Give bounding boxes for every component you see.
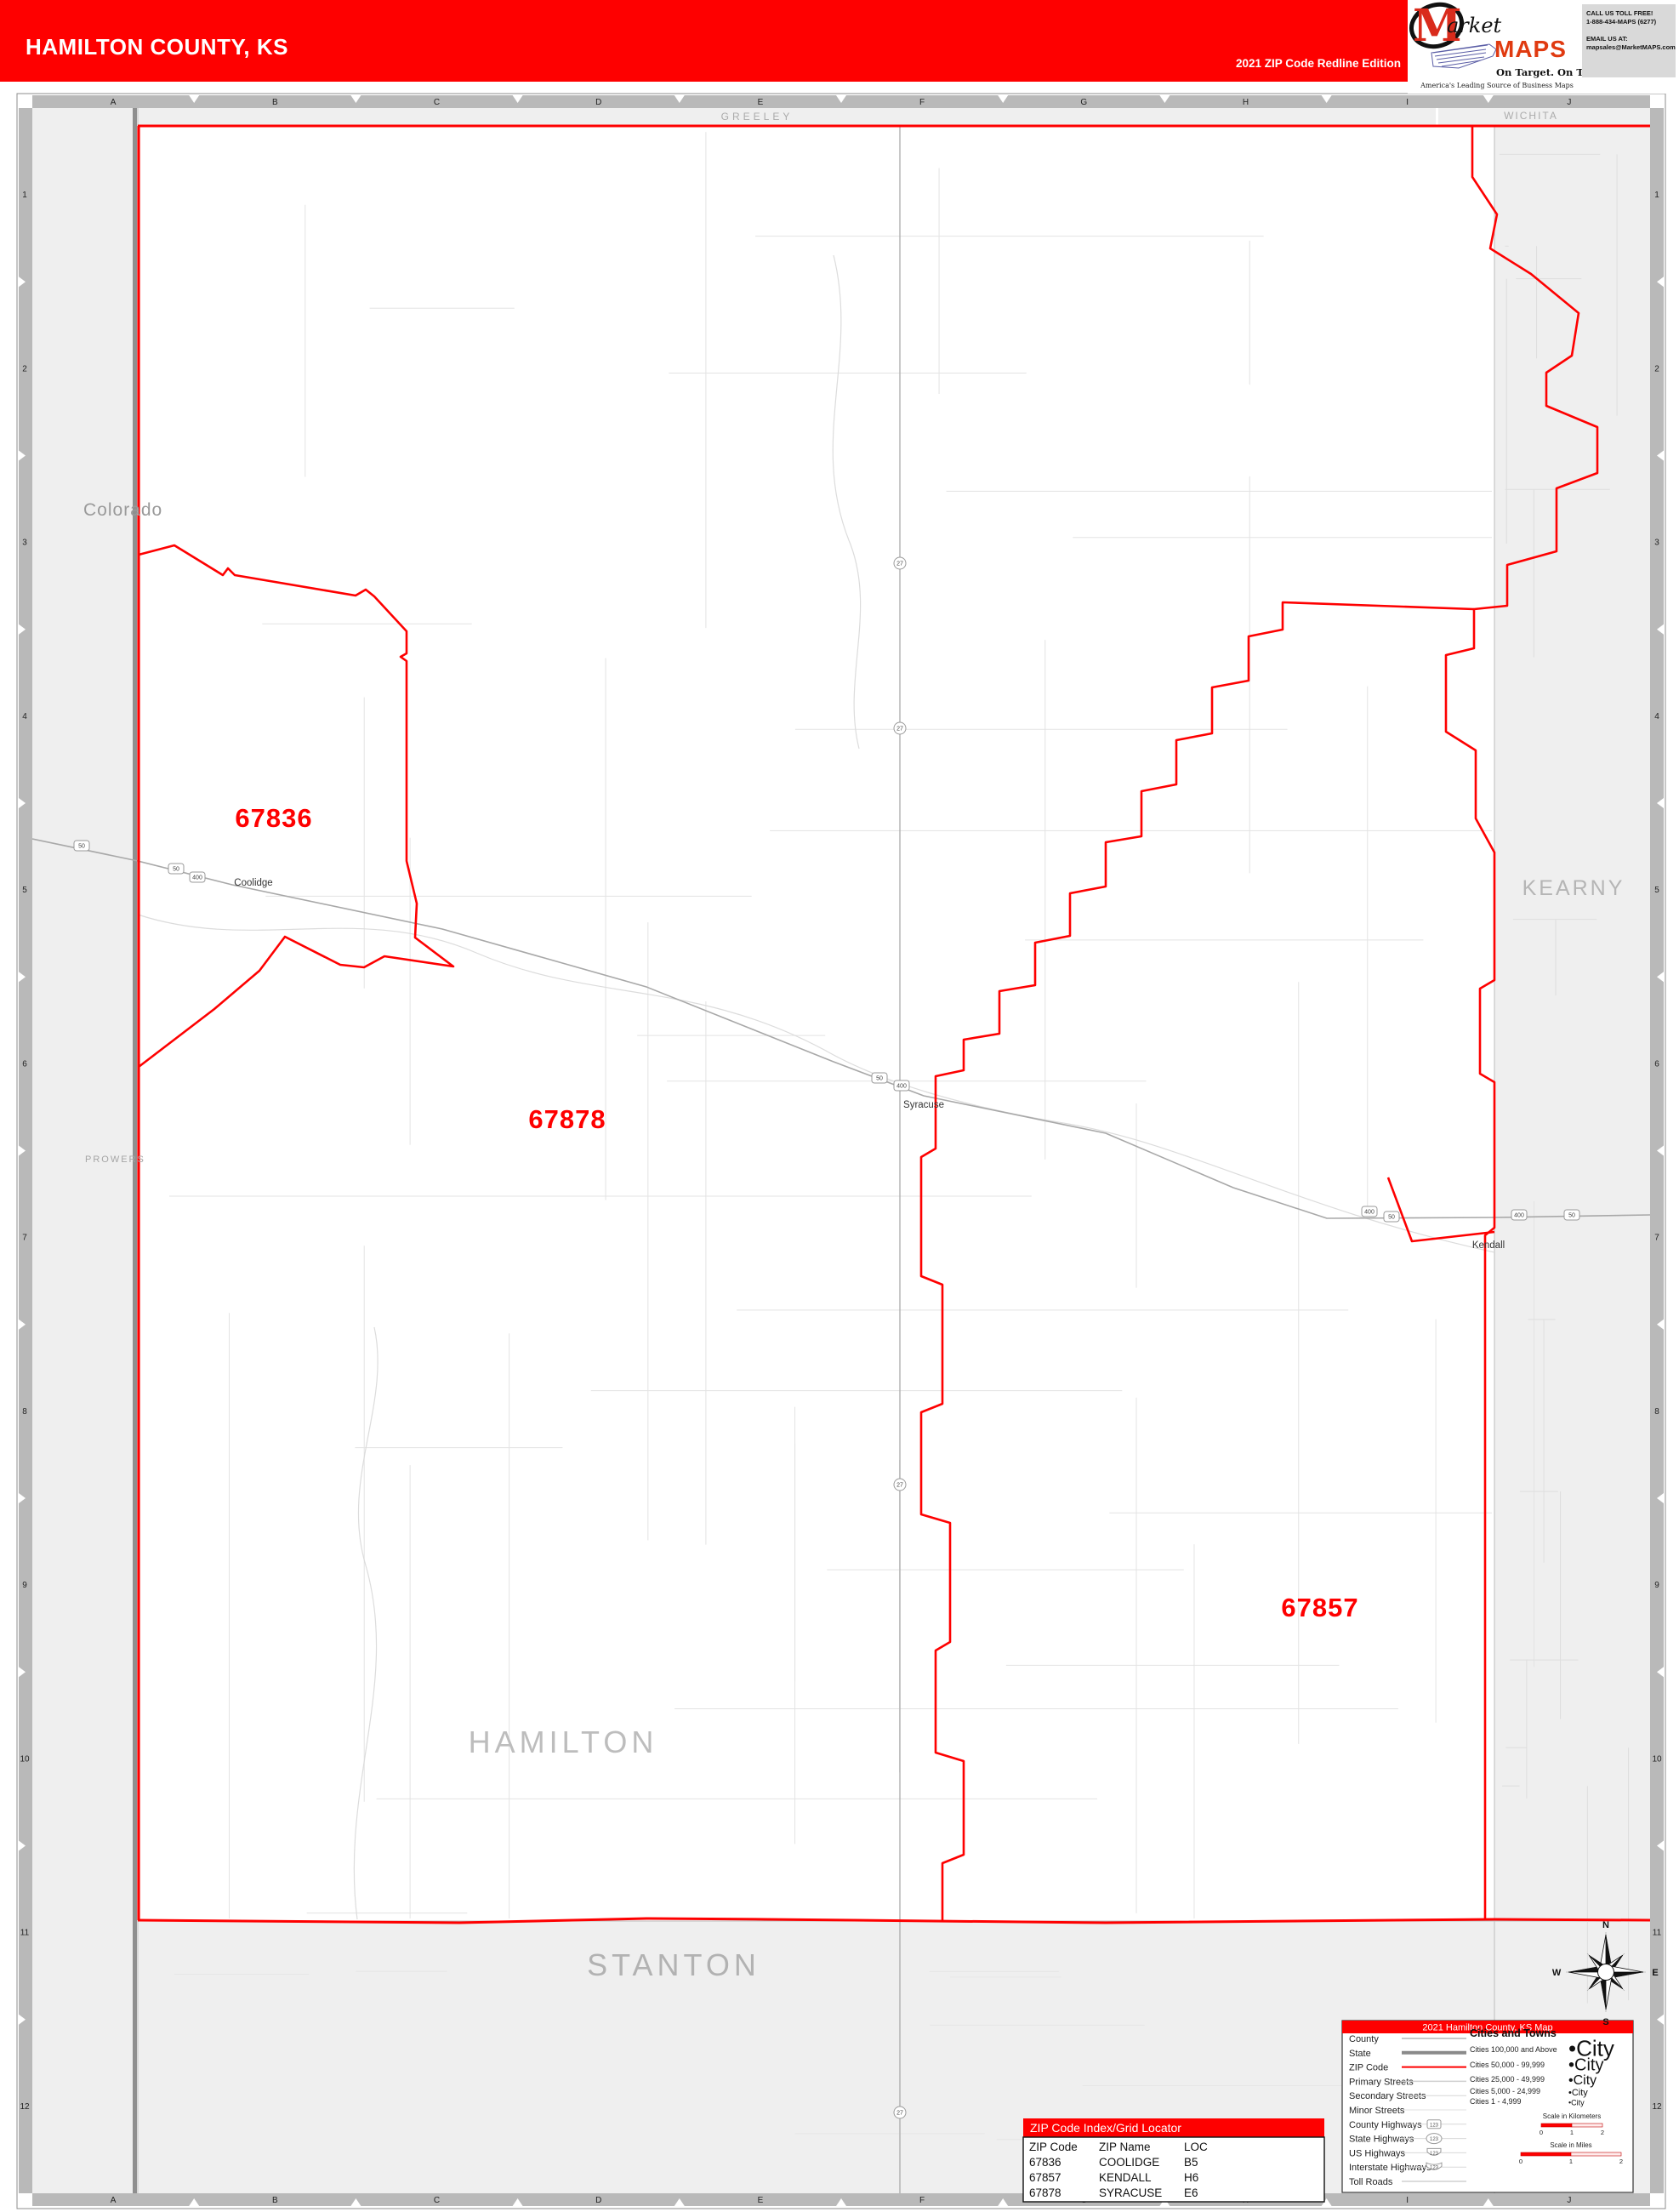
area-colorado [32,108,138,2193]
area-kearny [1494,126,1650,2193]
legend-city-sample: •City [1568,2099,1585,2107]
grid-col-label: J [1567,98,1571,107]
grid-row-label: 9 [1654,1581,1659,1590]
zip-index-cell: B5 [1184,2156,1198,2169]
svg-text:27: 27 [896,562,903,567]
legend-scale-tick: 1 [1570,2129,1574,2136]
legend-item-label: Toll Roads [1349,2177,1393,2187]
legend-item-label: Minor Streets [1349,2106,1405,2116]
logo-subtitle: America's Leading Source of Business Map… [1408,82,1586,89]
grid-row-label: 11 [20,1929,30,1938]
grid-row-label: 8 [1654,1407,1659,1417]
zip-index-cell: 67836 [1029,2156,1061,2169]
logo-maps-text: MAPS [1494,36,1567,63]
page: AABBCCDDEEFFGGHHIIJJ11223344556677889910… [0,0,1679,2212]
zip-index-col-header: ZIP Code [1029,2141,1078,2153]
zip-index-col-header: ZIP Name [1099,2141,1151,2153]
highway-shield-400: 400 [894,1080,909,1091]
legend-item-label: ZIP Code [1349,2063,1388,2073]
grid-col-label: G [1080,98,1087,107]
svg-text:50: 50 [1388,1215,1395,1221]
grid-row-label: 10 [1652,1754,1662,1764]
grid-col-label: C [434,98,440,107]
legend-city-sample: •City [1568,2056,1603,2075]
grid-row-label: 10 [20,1754,30,1764]
page-title: HAMILTON COUNTY, KS [26,34,288,60]
grid-row-label: 11 [1653,1929,1662,1938]
svg-text:50: 50 [78,844,85,850]
grid-col-label: A [111,98,117,107]
grid-row-label: 7 [22,1234,27,1243]
legend-item-label: State [1349,2049,1371,2059]
legend-item-label: Primary Streets [1349,2077,1414,2087]
highway-shield-50: 50 [168,864,184,874]
grid-row-label: 12 [1652,2102,1662,2112]
zip-label-67878: 67878 [528,1104,606,1134]
grid-row-label: 8 [22,1407,27,1417]
legend: 2021 Hamilton County, KS MapCountyStateZ… [1342,2021,1633,2192]
compass-label-W: W [1552,1968,1562,1978]
grid-col-label: H [1243,98,1249,107]
compass-label-E: E [1652,1968,1658,1978]
region-label-prowers: PROWERS [85,1154,145,1165]
zip-index-cell: H6 [1184,2171,1198,2184]
svg-text:400: 400 [1364,1210,1375,1216]
legend-scale-title: Scale in Miles [1550,2141,1591,2149]
grid-row-label: 4 [1654,712,1659,721]
legend-scale-tick: 0 [1519,2158,1522,2165]
grid-row-label: 5 [1654,886,1659,895]
grid-row-label: 4 [22,712,27,721]
region-label-kearny: KEARNY [1522,876,1625,900]
grid-row-label: 2 [1654,364,1659,373]
svg-text:50: 50 [173,867,179,873]
grid-row-label: 6 [1654,1059,1659,1069]
svg-text:27: 27 [896,727,903,733]
town-label-kendall: Kendall [1472,1240,1505,1251]
highway-shield-400: 400 [1511,1210,1527,1220]
region-label-hamilton: HAMILTON [469,1725,658,1759]
grid-col-label: B [272,98,278,107]
highway-shield-400: 400 [1362,1206,1377,1217]
svg-text:123: 123 [1430,2152,1439,2157]
legend-scale-tick: 1 [1569,2158,1573,2165]
highway-shield-50: 50 [1384,1211,1399,1222]
header-bar: HAMILTON COUNTY, KS 2021 ZIP Code Redlin… [0,0,1408,82]
svg-text:27: 27 [896,2111,903,2117]
zip-index-cell: KENDALL [1099,2171,1152,2184]
zip-index-cell: 67878 [1029,2186,1061,2199]
county-map: AABBCCDDEEFFGGHHIIJJ11223344556677889910… [0,0,1679,2212]
grid-col-label: I [1406,2196,1409,2205]
area-greeley-wichita-strip [138,108,1650,126]
legend-city-label: Cities 25,000 - 49,999 [1470,2075,1545,2084]
grid-row-label: 3 [22,539,27,548]
region-label-greeley: GREELEY [721,111,794,123]
grid-col-label: B [272,2196,278,2205]
state-line-colorado-kansas [133,108,137,2193]
region-label-wichita: WICHITA [1504,110,1558,122]
grid-row-label: 5 [22,886,27,895]
highway-shield-50: 50 [872,1073,887,1083]
contact-call-label: CALL US TOLL FREE! [1586,9,1676,18]
svg-text:400: 400 [1514,1213,1524,1219]
highway-shield-50: 50 [1564,1210,1579,1220]
highway-shield-400: 400 [190,872,205,882]
grid-row-label: 12 [20,2102,30,2112]
grid-col-label: D [595,2196,601,2205]
highway-shield-27: 27 [894,557,906,569]
zip-index-cell: SYRACUSE [1099,2186,1162,2199]
grid-row-label: 1 [22,191,27,200]
legend-city-sample: •City [1568,2088,1588,2098]
contact-phone: 1-888-434-MAPS (6277) [1586,18,1676,26]
grid-col-label: F [919,98,925,107]
grid-row-label: 7 [1654,1234,1659,1243]
legend-scale-title: Scale in Kilometers [1543,2112,1601,2120]
grid-col-label: E [758,2196,764,2205]
svg-text:27: 27 [896,1483,903,1489]
legend-cities-header: Cities and Towns [1470,2027,1557,2039]
svg-text:123: 123 [1430,2166,1439,2171]
svg-text:50: 50 [1568,1213,1575,1219]
grid-row-label: 2 [22,364,27,373]
grid-row-label: 6 [22,1059,27,1069]
zip-index: ZIP Code Index/Grid LocatorZIP CodeZIP N… [1023,2118,1324,2202]
compass-label-S: S [1602,2017,1608,2027]
contact-box: CALL US TOLL FREE! 1-888-434-MAPS (6277)… [1582,4,1676,77]
logo-market-text: arket [1447,14,1501,37]
highway-shield-27: 27 [894,2107,906,2118]
marketmaps-logo: M arket MAPS On Target. On Time. America… [1408,0,1679,94]
zip-index-cell: 67857 [1029,2171,1061,2184]
town-label-coolidge: Coolidge [234,878,272,888]
legend-item-label: Secondary Streets [1349,2091,1426,2101]
town-label-syracuse: Syracuse [903,1100,944,1110]
grid-col-label: J [1567,2196,1571,2205]
region-label-colorado: Colorado [83,500,162,520]
region-label-stanton: STANTON [587,1947,760,1982]
contact-email: mapsales@MarketMAPS.com [1586,43,1676,52]
contact-email-label: EMAIL US AT: [1586,35,1676,43]
svg-text:50: 50 [876,1076,883,1082]
legend-scale-tick: 2 [1601,2129,1604,2136]
zip-label-67857: 67857 [1281,1593,1358,1622]
compass-label-N: N [1602,1920,1609,1930]
zip-index-col-header: LOC [1184,2141,1208,2153]
legend-item-label: State Highways [1349,2135,1414,2145]
grid-col-label: D [595,98,601,107]
grid-col-label: I [1406,98,1409,107]
legend-city-label: Cities 5,000 - 24,999 [1470,2087,1540,2095]
legend-city-label: Cities 1 - 4,999 [1470,2097,1522,2106]
grid-row-label: 1 [1654,191,1659,200]
zip-index-cell: COOLIDGE [1099,2156,1159,2169]
legend-scale-tick: 0 [1540,2129,1543,2136]
zip-index-title: ZIP Code Index/Grid Locator [1030,2121,1181,2135]
svg-text:400: 400 [896,1084,907,1090]
highway-shield-27: 27 [894,1479,906,1491]
grid-col-label: F [919,2196,925,2205]
zip-index-cell: E6 [1184,2186,1198,2199]
grid-row-label: 3 [1654,539,1659,548]
grid-row-label: 9 [22,1581,27,1590]
svg-text:123: 123 [1430,2123,1439,2128]
zip-label-67836: 67836 [235,803,312,833]
svg-text:123: 123 [1430,2137,1439,2142]
grid-col-label: C [434,2196,440,2205]
legend-scale-tick: 2 [1619,2158,1623,2165]
legend-item-label: County Highways [1349,2120,1422,2130]
edition-label: 2021 ZIP Code Redline Edition [1236,57,1401,70]
legend-city-sample: •City [1568,2073,1596,2088]
highway-shield-50: 50 [74,841,89,851]
svg-text:400: 400 [192,875,202,881]
legend-item-label: Interstate Highways [1349,2163,1431,2173]
map-canvas [32,108,1650,2193]
legend-item-label: County [1349,2034,1379,2044]
highway-shield-27: 27 [894,722,906,734]
grid-col-label: A [111,2196,117,2205]
grid-col-label: E [758,98,764,107]
legend-item-label: US Highways [1349,2148,1406,2158]
legend-city-label: Cities 100,000 and Above [1470,2045,1557,2054]
legend-city-label: Cities 50,000 - 99,999 [1470,2061,1545,2069]
